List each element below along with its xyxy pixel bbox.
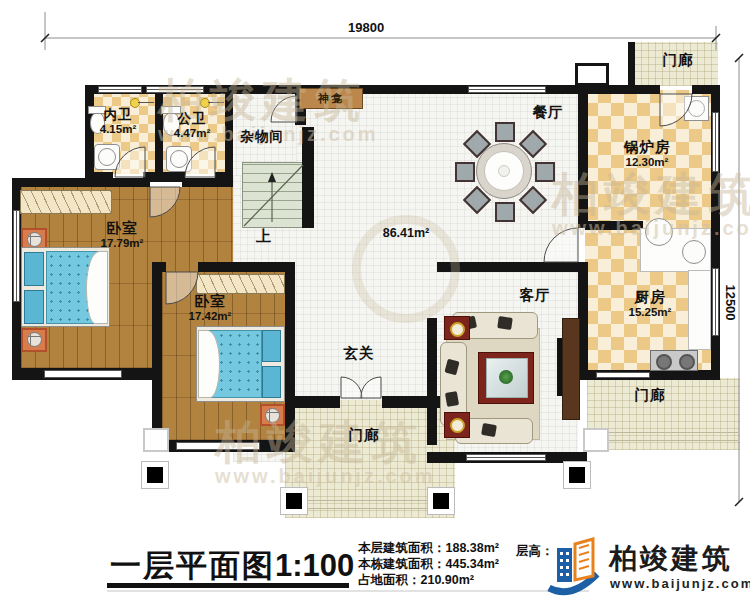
dimension-top: 19800 bbox=[348, 20, 384, 35]
room-name: 公卫 bbox=[174, 112, 210, 127]
entry-door-arc bbox=[361, 377, 381, 398]
room-label-menlang-bc: 门廊 bbox=[349, 428, 380, 444]
entry-door-arc bbox=[341, 377, 362, 398]
brand-logo: 柏竣建筑 www.baijunjz.com bbox=[543, 534, 743, 602]
floor-plan: 柏竣建筑 www.baijunjz.com 柏竣建筑 www.baijunjz.… bbox=[0, 0, 750, 606]
dimension-right: 12500 bbox=[723, 284, 738, 320]
stat-value: 210.90m² bbox=[421, 573, 475, 587]
plan-scale: 1:100 bbox=[275, 548, 354, 583]
watermark-name: 柏竣建筑 bbox=[215, 418, 436, 466]
room-area: 17.79m² bbox=[101, 237, 144, 250]
stat-label: 本栋建筑面积： bbox=[358, 557, 446, 571]
title-underline bbox=[107, 583, 349, 588]
room-area: 4.15m² bbox=[100, 123, 136, 136]
brand-logo-icon bbox=[543, 534, 605, 598]
stats-block: 本层建筑面积：188.38m² 本栋建筑面积：445.34m² 占地面积：210… bbox=[358, 540, 499, 588]
room-label-shenkan: 神龛 bbox=[318, 92, 344, 104]
watermark-url: www.baijunjz.com bbox=[215, 466, 436, 487]
room-name: 厨房 bbox=[629, 290, 672, 306]
stairs-up-label: 上 bbox=[256, 228, 272, 245]
room-area: 15.25m² bbox=[629, 306, 672, 319]
watermark: 柏竣建筑 www.baijunjz.com bbox=[215, 418, 436, 487]
door-arc bbox=[115, 147, 145, 177]
door-arc bbox=[150, 187, 180, 217]
watermark-name: 柏竣建筑 bbox=[552, 170, 750, 218]
room-label-woshi1: 卧室 17.79m² bbox=[101, 221, 144, 250]
room-area: 12.30m² bbox=[624, 156, 671, 169]
logo-building-blue bbox=[557, 548, 572, 582]
room-name: 内卫 bbox=[100, 108, 136, 123]
stair-break-line bbox=[244, 165, 303, 226]
title-underline-thin bbox=[107, 590, 589, 592]
room-name: 卧室 bbox=[101, 221, 144, 237]
door-arc bbox=[185, 147, 215, 177]
stat-label: 本层建筑面积： bbox=[358, 541, 446, 555]
room-label-menlang-tr: 门廊 bbox=[663, 53, 694, 69]
stat-value: 188.38m² bbox=[446, 541, 500, 555]
plan-title: 一层平面图 bbox=[110, 548, 275, 583]
stat-line: 本栋建筑面积：445.34m² bbox=[358, 556, 499, 572]
room-name: 锅炉房 bbox=[624, 140, 671, 156]
room-label-neiwei: 内卫 4.15m² bbox=[100, 108, 136, 135]
stair-arrow-head bbox=[268, 172, 276, 182]
brand-name: 柏竣建筑 bbox=[609, 540, 733, 578]
stat-line: 本层建筑面积：188.38m² bbox=[358, 540, 499, 556]
door-arc bbox=[660, 94, 692, 126]
room-area: 17.42m² bbox=[189, 310, 232, 323]
room-label-gongwei: 公卫 4.47m² bbox=[174, 112, 210, 139]
room-label-guolufang: 锅炉房 12.30m² bbox=[624, 140, 671, 169]
room-name: 卧室 bbox=[189, 294, 232, 310]
watermark: 柏竣建筑 www.baijunjz.com bbox=[552, 170, 750, 239]
stat-line: 占地面积：210.90m² bbox=[358, 572, 499, 588]
room-label-zawujian: 杂物间 bbox=[240, 130, 284, 145]
hall-area-label: 86.41m² bbox=[383, 227, 430, 241]
watermark-url: www.baijunjz.com bbox=[552, 218, 750, 239]
stat-value: 445.34m² bbox=[446, 557, 500, 571]
room-area: 4.47m² bbox=[174, 127, 210, 140]
room-label-chufang: 厨房 15.25m² bbox=[629, 290, 672, 319]
title-block: 一层平面图1:100 bbox=[110, 545, 354, 587]
brand-url: www.baijunjz.com bbox=[610, 576, 750, 591]
stat-label: 占地面积： bbox=[358, 573, 421, 587]
room-label-keting: 客厅 bbox=[520, 288, 551, 304]
room-label-canting: 餐厅 bbox=[533, 105, 564, 121]
room-label-xuanguan: 玄关 bbox=[344, 346, 375, 362]
room-label-woshi2: 卧室 17.42m² bbox=[189, 294, 232, 323]
room-label-menlang-br: 门廊 bbox=[635, 388, 666, 404]
